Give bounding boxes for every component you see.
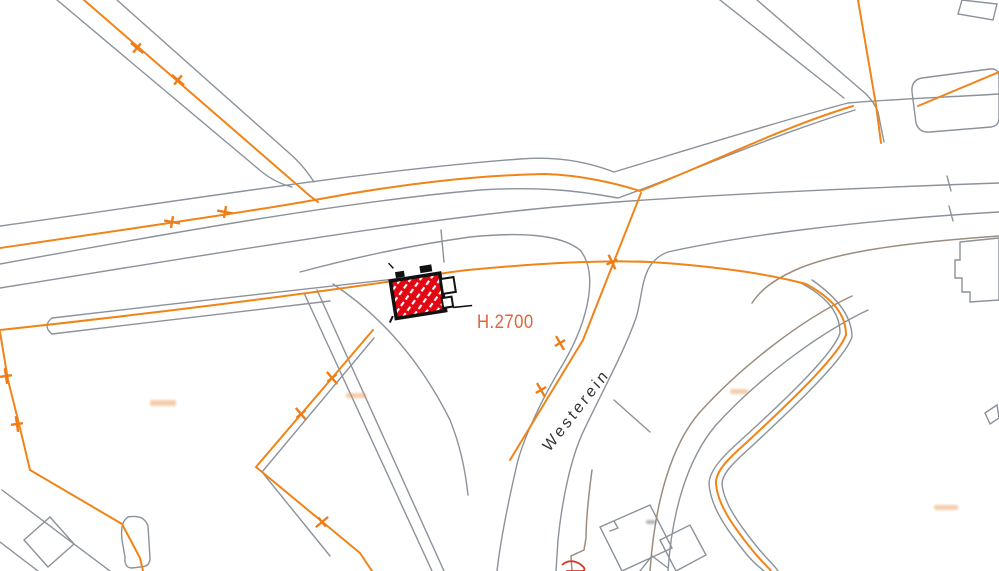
utility-cable [256,330,373,571]
cable-junction-cross-icon [216,205,234,220]
illegible-label [646,520,656,524]
cable-junction-cross-icon [163,215,181,230]
parcel-line [614,400,650,432]
building-outline [660,525,706,571]
road-lines-brown-layer [571,236,999,571]
building-annex [395,271,405,278]
parcel-line [0,542,38,571]
road-edge [57,0,292,187]
map-vector-layer [0,0,999,571]
illegible-label [934,505,958,510]
red-structure-outline [562,561,585,571]
parcel-line [2,490,110,571]
road-edge [52,301,330,334]
cable-marker-layer [0,38,621,531]
road-lines-layer [0,0,999,571]
building-annex [419,264,432,273]
illegible-label [346,393,366,398]
parcel-line [709,282,840,571]
building-annex-outline [441,277,456,294]
utility-cable [0,106,853,248]
utility-cable [84,0,318,202]
utility-lines-layer [0,0,999,571]
road-edge [47,318,52,334]
building-tick [389,316,394,323]
cable-junction-cross-icon [551,333,569,353]
building-outline [640,556,668,571]
building-tick [388,262,393,269]
utility-cable [858,0,881,143]
parcel-line [441,230,444,262]
parcel-line [947,176,951,191]
building-tick [453,304,472,308]
building-outline [600,505,672,571]
road-edge [720,0,844,98]
building-outline [122,516,150,568]
illegible-label [730,389,748,394]
building-outline [985,405,999,424]
road-edge-brown [752,236,999,303]
parcel-line [722,280,852,571]
road-edge [0,94,999,226]
building-footprint-hatched [390,273,445,318]
building-outline [955,238,999,302]
building-annex-outline [442,297,453,308]
parcel-line [262,338,374,556]
cable-junction-cross-icon [10,415,24,433]
map-canvas[interactable]: H.2700 Westerein [0,0,999,571]
parcel-label: H.2700 [477,312,534,334]
road-edge-brown [571,470,592,571]
parcel-line [317,290,444,571]
highlighted-building[interactable] [381,251,473,322]
parcel-line [949,206,953,221]
building-outline [958,0,997,20]
road-edge [117,0,314,182]
illegible-label [150,400,176,406]
